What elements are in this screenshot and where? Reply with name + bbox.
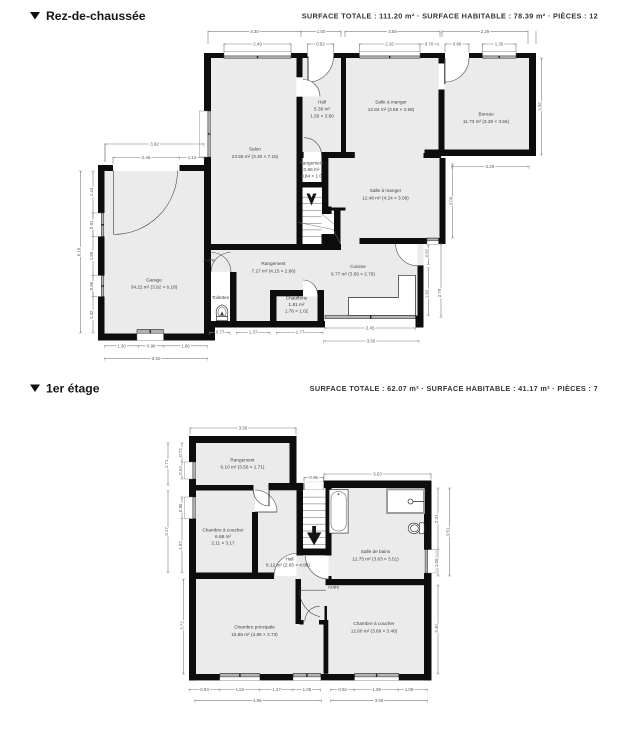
svg-text:Bureau: Bureau (478, 112, 494, 117)
svg-text:Autre: Autre (328, 585, 340, 590)
svg-text:Hall: Hall (318, 100, 326, 105)
svg-text:0.77: 0.77 (216, 329, 225, 334)
svg-text:12.48 m² (4.24 × 3.09): 12.48 m² (4.24 × 3.09) (362, 196, 409, 201)
svg-text:Garage: Garage (146, 278, 162, 283)
svg-text:0.65 m²: 0.65 m² (304, 167, 320, 172)
svg-text:1.78 × 1.02: 1.78 × 1.02 (285, 309, 309, 314)
svg-text:2.46: 2.46 (142, 155, 151, 160)
svg-text:Salle de bains: Salle de bains (361, 549, 391, 554)
svg-text:0.96: 0.96 (453, 42, 462, 47)
svg-text:SURFACE TOTALE : 111.20 m² · S: SURFACE TOTALE : 111.20 m² · SURFACE HAB… (302, 11, 598, 20)
svg-text:1.05: 1.05 (303, 687, 312, 692)
svg-text:Autre: Autre (203, 258, 215, 263)
svg-text:0.92: 0.92 (316, 42, 325, 47)
svg-text:Chambre à coucher: Chambre à coucher (353, 621, 395, 626)
svg-text:3.56: 3.56 (239, 426, 248, 431)
svg-text:Rangement: Rangement (261, 261, 286, 266)
svg-text:3.58: 3.58 (388, 29, 397, 34)
svg-text:3.56: 3.56 (538, 102, 543, 111)
svg-text:0.63: 0.63 (178, 466, 183, 475)
svg-text:1.71: 1.71 (164, 459, 169, 468)
svg-text:1.12: 1.12 (188, 155, 197, 160)
svg-text:Salle à manger: Salle à manger (375, 100, 407, 105)
svg-text:3.72: 3.72 (180, 621, 185, 630)
svg-text:15.85 m² (4.86 × 3.73): 15.85 m² (4.86 × 3.73) (231, 632, 278, 637)
svg-text:0.86: 0.86 (89, 281, 94, 290)
svg-text:1.30: 1.30 (117, 343, 126, 348)
svg-text:1.50: 1.50 (317, 29, 326, 34)
svg-text:1.37: 1.37 (249, 329, 258, 334)
svg-text:2.29: 2.29 (481, 29, 490, 34)
svg-text:1.50 × 3.60: 1.50 × 3.60 (310, 114, 334, 119)
svg-text:Salle à manger: Salle à manger (370, 188, 402, 193)
svg-text:3.45: 3.45 (366, 326, 375, 331)
svg-text:0.93: 0.93 (200, 687, 209, 692)
svg-text:1.66: 1.66 (181, 343, 190, 348)
svg-text:9.77 m² (3.56 × 2.79): 9.77 m² (3.56 × 2.79) (331, 271, 375, 276)
svg-text:12.60 m² (3.69 × 3.48): 12.60 m² (3.69 × 3.48) (351, 629, 398, 634)
svg-text:0.91: 0.91 (89, 220, 94, 229)
svg-text:0.96: 0.96 (309, 475, 318, 480)
svg-text:0.70: 0.70 (425, 42, 434, 47)
svg-text:23.56 m² (3.30 × 7.15): 23.56 m² (3.30 × 7.15) (232, 154, 279, 159)
svg-text:2.79: 2.79 (437, 288, 442, 297)
svg-text:3.63: 3.63 (373, 472, 382, 477)
svg-text:Hall: Hall (285, 557, 293, 562)
svg-text:3.17: 3.17 (164, 527, 169, 536)
svg-text:0.85: 0.85 (178, 503, 183, 512)
svg-text:1.52: 1.52 (236, 687, 245, 692)
svg-text:6.68 m²: 6.68 m² (215, 534, 231, 539)
svg-text:1.44: 1.44 (89, 187, 94, 196)
svg-text:34.22 m² (3.92 × 6.18): 34.22 m² (3.92 × 6.18) (131, 285, 178, 290)
svg-text:0.96: 0.96 (147, 343, 156, 348)
svg-text:Chaufferie: Chaufferie (286, 296, 308, 301)
svg-text:2.49: 2.49 (253, 42, 262, 47)
svg-text:Salon: Salon (249, 147, 261, 152)
svg-text:3.40: 3.40 (434, 624, 439, 633)
svg-text:1.77: 1.77 (296, 329, 305, 334)
svg-text:1.82: 1.82 (424, 289, 429, 298)
svg-text:4.86: 4.86 (253, 698, 262, 703)
svg-text:Toilettes: Toilettes (212, 295, 230, 300)
svg-text:2.11 × 3.17: 2.11 × 3.17 (211, 541, 235, 546)
svg-text:1.09: 1.09 (405, 687, 414, 692)
svg-text:Chambre principale: Chambre principale (234, 625, 275, 630)
svg-text:12.84 m² (3.59 × 3.58): 12.84 m² (3.59 × 3.58) (368, 107, 415, 112)
svg-text:0.82: 0.82 (424, 248, 429, 257)
svg-text:0.72: 0.72 (178, 448, 183, 457)
svg-text:Rangement: Rangement (299, 161, 324, 166)
svg-text:0.84 × 1.0: 0.84 × 1.0 (301, 174, 322, 179)
svg-text:1.52: 1.52 (178, 541, 183, 550)
svg-text:12.75 m² (3.63 × 3.51): 12.75 m² (3.63 × 3.51) (352, 557, 399, 562)
svg-text:1.55: 1.55 (89, 251, 94, 260)
svg-text:3.30: 3.30 (250, 29, 259, 34)
svg-text:3.09: 3.09 (449, 196, 454, 205)
svg-text:Rangement: Rangement (230, 458, 255, 463)
svg-text:1.05: 1.05 (434, 558, 439, 567)
svg-text:1.68: 1.68 (372, 687, 381, 692)
svg-text:3.69: 3.69 (375, 698, 384, 703)
svg-text:3.92: 3.92 (150, 142, 159, 147)
svg-text:5.39 m²: 5.39 m² (314, 107, 330, 112)
svg-text:11.73 m² (3.29 × 3.56): 11.73 m² (3.29 × 3.56) (463, 119, 510, 124)
svg-text:3.92: 3.92 (152, 356, 161, 361)
svg-text:2.26: 2.26 (385, 42, 394, 47)
svg-text:2.31: 2.31 (434, 514, 439, 523)
svg-text:1.30: 1.30 (495, 42, 504, 47)
svg-text:3.51: 3.51 (446, 527, 451, 536)
svg-text:6.18: 6.18 (77, 247, 82, 256)
svg-text:0.92: 0.92 (338, 687, 347, 692)
svg-text:1.27: 1.27 (272, 687, 281, 692)
svg-text:3.50: 3.50 (367, 339, 376, 344)
svg-text:1er étage: 1er étage (46, 382, 100, 396)
svg-text:2.29: 2.29 (486, 164, 495, 169)
svg-text:SURFACE TOTALE : 62.07 m² · SU: SURFACE TOTALE : 62.07 m² · SURFACE HABI… (310, 384, 598, 393)
svg-text:Rez-de-chaussée: Rez-de-chaussée (46, 9, 146, 23)
svg-text:Chambre à coucher: Chambre à coucher (202, 528, 244, 533)
svg-text:8.12 m² (2.65 × 4.99): 8.12 m² (2.65 × 4.99) (266, 563, 310, 568)
svg-text:1.42: 1.42 (89, 310, 94, 319)
svg-text:1.81 m²: 1.81 m² (289, 302, 305, 307)
svg-text:Cuisine: Cuisine (350, 264, 366, 269)
svg-text:7.27 m² (4.15 × 2.66): 7.27 m² (4.15 × 2.66) (252, 269, 296, 274)
svg-text:6.10 m² (3.56 × 1.71): 6.10 m² (3.56 × 1.71) (221, 465, 265, 470)
